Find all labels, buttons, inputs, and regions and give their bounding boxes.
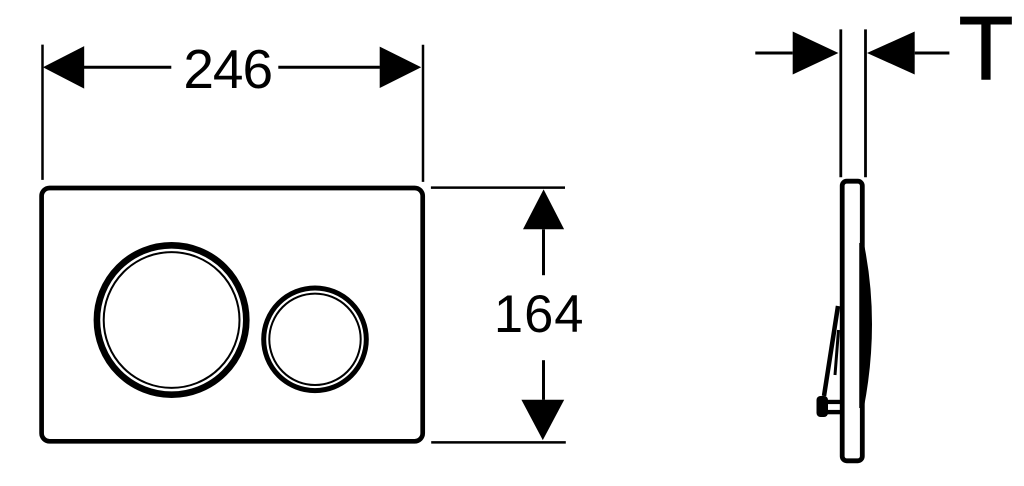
svg-text:246: 246 bbox=[183, 38, 272, 100]
svg-text:T: T bbox=[959, 0, 1014, 99]
svg-text:164: 164 bbox=[494, 285, 585, 344]
